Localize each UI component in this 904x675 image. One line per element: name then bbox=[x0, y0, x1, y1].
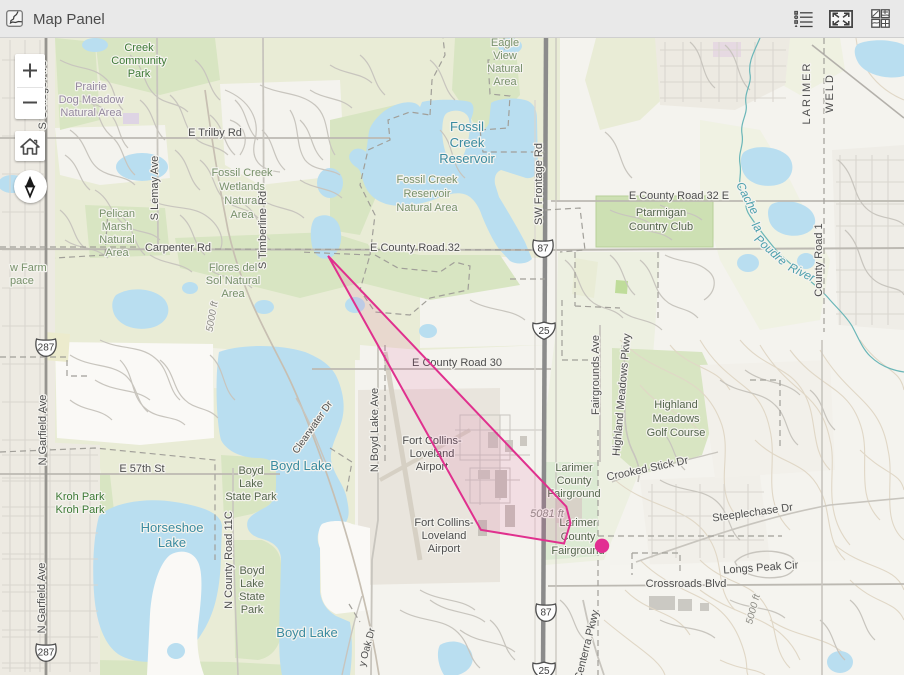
svg-text:Kroh Park: Kroh Park bbox=[56, 504, 105, 516]
svg-text:Airport: Airport bbox=[428, 543, 460, 555]
svg-text:Area: Area bbox=[221, 288, 245, 300]
svg-text:Lake: Lake bbox=[240, 578, 264, 590]
svg-text:287: 287 bbox=[38, 343, 55, 354]
svg-text:287: 287 bbox=[38, 648, 55, 659]
svg-text:Larimer: Larimer bbox=[555, 462, 593, 474]
svg-text:Golf Course: Golf Course bbox=[647, 427, 706, 439]
svg-text:Boyd Lake: Boyd Lake bbox=[270, 458, 331, 473]
svg-text:87: 87 bbox=[537, 244, 549, 255]
svg-text:Pelican: Pelican bbox=[99, 208, 135, 220]
svg-text:Marsh: Marsh bbox=[102, 221, 133, 233]
svg-text:View: View bbox=[493, 50, 517, 62]
svg-text:Natural Area: Natural Area bbox=[60, 107, 122, 119]
svg-text:County: County bbox=[557, 475, 592, 487]
svg-text:Lake: Lake bbox=[158, 535, 186, 550]
svg-text:Crossroads Blvd: Crossroads Blvd bbox=[646, 578, 727, 590]
svg-text:Natural: Natural bbox=[224, 195, 259, 207]
svg-text:w Farm: w Farm bbox=[9, 262, 47, 274]
svg-text:Creek: Creek bbox=[124, 42, 154, 54]
svg-text:N Boyd Lake Ave: N Boyd Lake Ave bbox=[369, 388, 381, 472]
svg-text:Fairgrounds Ave: Fairgrounds Ave bbox=[590, 335, 602, 415]
svg-text:25: 25 bbox=[538, 326, 550, 337]
svg-text:Natural Area: Natural Area bbox=[396, 202, 458, 214]
svg-text:pace: pace bbox=[10, 275, 34, 287]
svg-text:S Timberline Rd: S Timberline Rd bbox=[257, 191, 269, 269]
svg-text:County Road 1: County Road 1 bbox=[813, 223, 825, 296]
svg-text:87: 87 bbox=[540, 608, 552, 619]
svg-text:SW Frontage Rd: SW Frontage Rd bbox=[533, 143, 545, 225]
svg-text:Park: Park bbox=[128, 68, 151, 80]
svg-text:E 57th St: E 57th St bbox=[119, 463, 164, 475]
svg-text:Flores del: Flores del bbox=[209, 262, 257, 274]
svg-text:Loveland: Loveland bbox=[422, 530, 467, 542]
svg-text:Creek: Creek bbox=[450, 135, 485, 150]
svg-text:Fort Collins-: Fort Collins- bbox=[414, 517, 474, 529]
svg-text:Natural: Natural bbox=[99, 234, 134, 246]
svg-text:Lake: Lake bbox=[239, 478, 263, 490]
svg-text:LARIMER: LARIMER bbox=[801, 62, 813, 125]
svg-text:Area: Area bbox=[105, 247, 129, 259]
svg-text:Reservoir: Reservoir bbox=[439, 151, 495, 166]
svg-text:Dog Meadow: Dog Meadow bbox=[59, 94, 124, 106]
svg-text:25: 25 bbox=[538, 666, 550, 675]
svg-text:Fossil: Fossil bbox=[450, 119, 484, 134]
svg-text:E Trilby Rd: E Trilby Rd bbox=[188, 127, 242, 139]
svg-text:S Lemay Ave: S Lemay Ave bbox=[149, 156, 161, 221]
svg-text:Meadows: Meadows bbox=[652, 413, 700, 425]
svg-text:Eagle: Eagle bbox=[491, 38, 519, 49]
svg-text:State Park: State Park bbox=[225, 491, 277, 503]
svg-text:Kroh Park: Kroh Park bbox=[56, 491, 105, 503]
svg-text:Horseshoe: Horseshoe bbox=[141, 520, 204, 535]
svg-text:Ptarmigan: Ptarmigan bbox=[636, 207, 686, 219]
svg-text:Natural: Natural bbox=[487, 63, 522, 75]
svg-text:Highland: Highland bbox=[654, 399, 697, 411]
svg-text:Fossil Creek: Fossil Creek bbox=[211, 167, 273, 179]
svg-text:Country Club: Country Club bbox=[629, 221, 693, 233]
svg-text:N County Road 11C: N County Road 11C bbox=[223, 511, 235, 609]
svg-text:E County Road 32: E County Road 32 bbox=[370, 242, 460, 254]
svg-text:Community: Community bbox=[111, 55, 167, 67]
svg-text:Prairie: Prairie bbox=[75, 81, 107, 93]
svg-text:Carpenter Rd: Carpenter Rd bbox=[145, 242, 211, 254]
svg-text:WELD: WELD bbox=[824, 73, 836, 113]
svg-text:Sol Natural: Sol Natural bbox=[206, 275, 260, 287]
svg-text:Boyd: Boyd bbox=[239, 565, 264, 577]
svg-text:Reservoir: Reservoir bbox=[403, 188, 450, 200]
svg-text:Park: Park bbox=[241, 604, 264, 616]
svg-text:State: State bbox=[239, 591, 265, 603]
svg-text:N Garfield Ave: N Garfield Ave bbox=[36, 563, 48, 634]
svg-text:Area: Area bbox=[493, 76, 517, 88]
svg-text:E County Road 32 E: E County Road 32 E bbox=[629, 190, 729, 202]
svg-text:Area: Area bbox=[230, 209, 254, 221]
svg-text:Boyd Lake: Boyd Lake bbox=[276, 625, 337, 640]
svg-text:N Garfield Ave: N Garfield Ave bbox=[37, 395, 49, 466]
svg-text:Boyd: Boyd bbox=[238, 465, 263, 477]
svg-text:Fossil Creek: Fossil Creek bbox=[396, 174, 458, 186]
